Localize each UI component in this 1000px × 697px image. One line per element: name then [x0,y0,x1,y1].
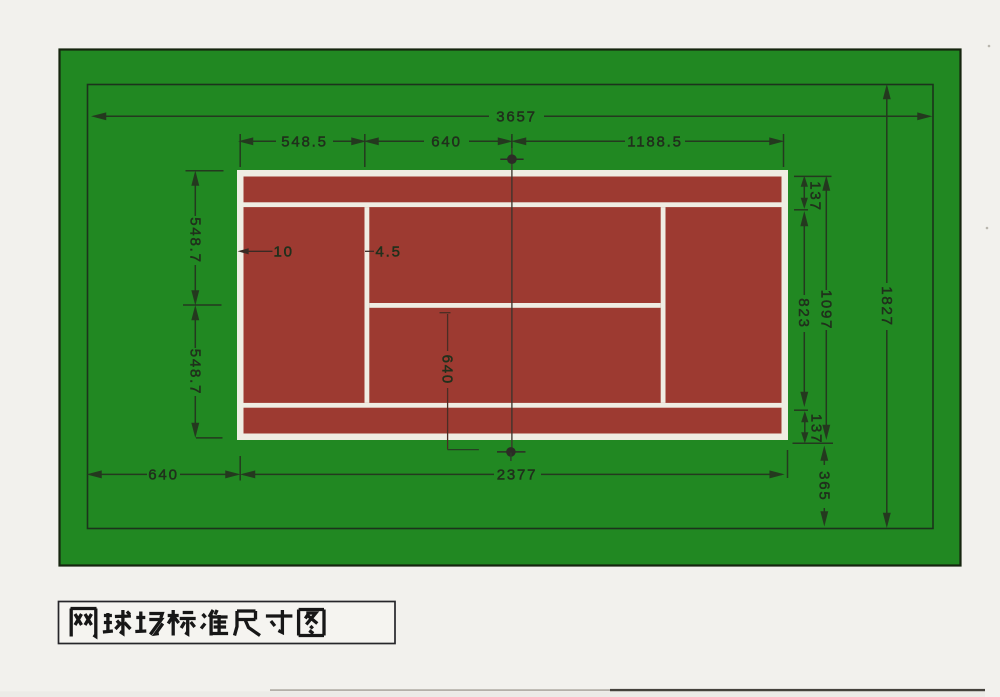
svg-text:137: 137 [807,414,824,444]
svg-text:3657: 3657 [496,109,537,126]
svg-text:548.5: 548.5 [281,133,328,150]
svg-text:1827: 1827 [878,286,895,327]
svg-text:823: 823 [795,298,812,328]
svg-text:2377: 2377 [497,466,538,483]
svg-text:548.7: 548.7 [186,349,203,396]
svg-text:365: 365 [815,471,832,501]
svg-text:640: 640 [439,355,456,385]
svg-text:548.7: 548.7 [186,217,203,264]
svg-text:1097: 1097 [817,290,834,331]
svg-text:10: 10 [274,243,294,260]
svg-text:1188.5: 1188.5 [627,133,683,150]
svg-text:4.5: 4.5 [376,243,402,260]
svg-text:640: 640 [431,133,461,150]
svg-text:137: 137 [807,181,824,211]
svg-text:640: 640 [148,466,178,483]
